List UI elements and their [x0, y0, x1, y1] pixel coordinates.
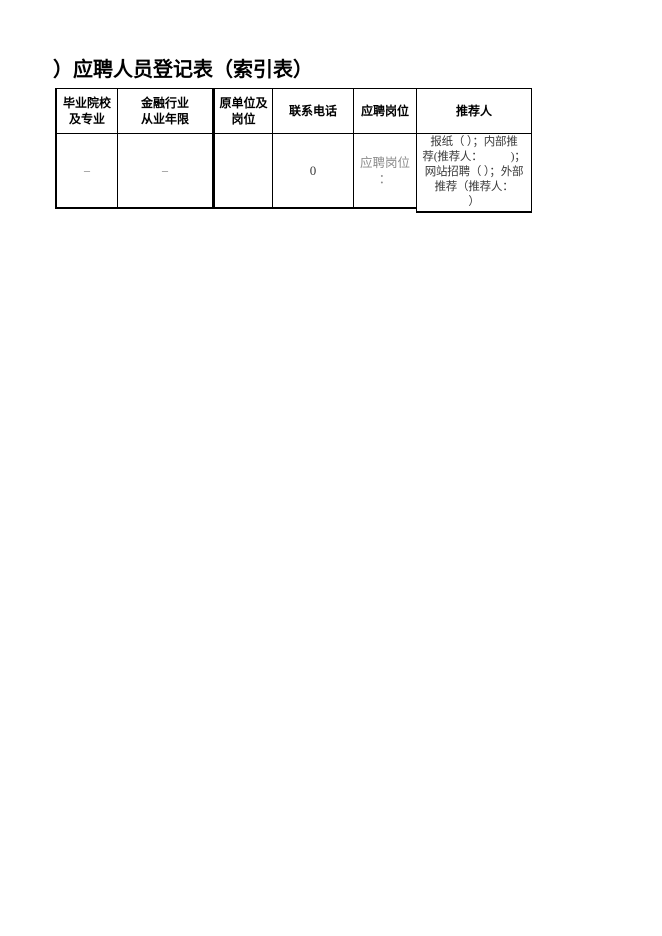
cell-graduation-school-major: – [57, 134, 117, 207]
header-cell-graduation-school-major: 毕业院校 及专业 [57, 89, 117, 133]
table-border-bottom [55, 207, 417, 209]
header-cell-previous-unit-position: 原单位及 岗位 [215, 89, 272, 133]
cell-contact-phone: 0 [273, 134, 353, 207]
page-title: ）应聘人员登记表（索引表） [53, 57, 313, 83]
cell-referrer: 报纸（ ）；内部推 荐(推荐人： )； 网站招聘（ ）；外部 推荐（推荐人： ） [417, 134, 531, 211]
document-page: { "title": "）应聘人员登记表（索引表）", "table": { "… [0, 0, 662, 936]
cell-previous-unit-position [215, 134, 272, 207]
header-cell-applied-position: 应聘岗位 [354, 89, 416, 133]
cell-finance-industry-years: – [118, 134, 212, 207]
applicant-registration-table: 毕业院校 及专业 金融行业 从业年限 原单位及 岗位 联系电话 应聘岗位 推荐人… [55, 88, 532, 214]
header-cell-finance-industry-years: 金融行业 从业年限 [118, 89, 212, 133]
header-cell-contact-phone: 联系电话 [273, 89, 353, 133]
table-border-right [531, 88, 532, 213]
table-border-bottom-referrer [416, 211, 532, 213]
cell-applied-position: 应聘岗位 ： [354, 134, 416, 207]
header-cell-referrer: 推荐人 [417, 89, 531, 133]
